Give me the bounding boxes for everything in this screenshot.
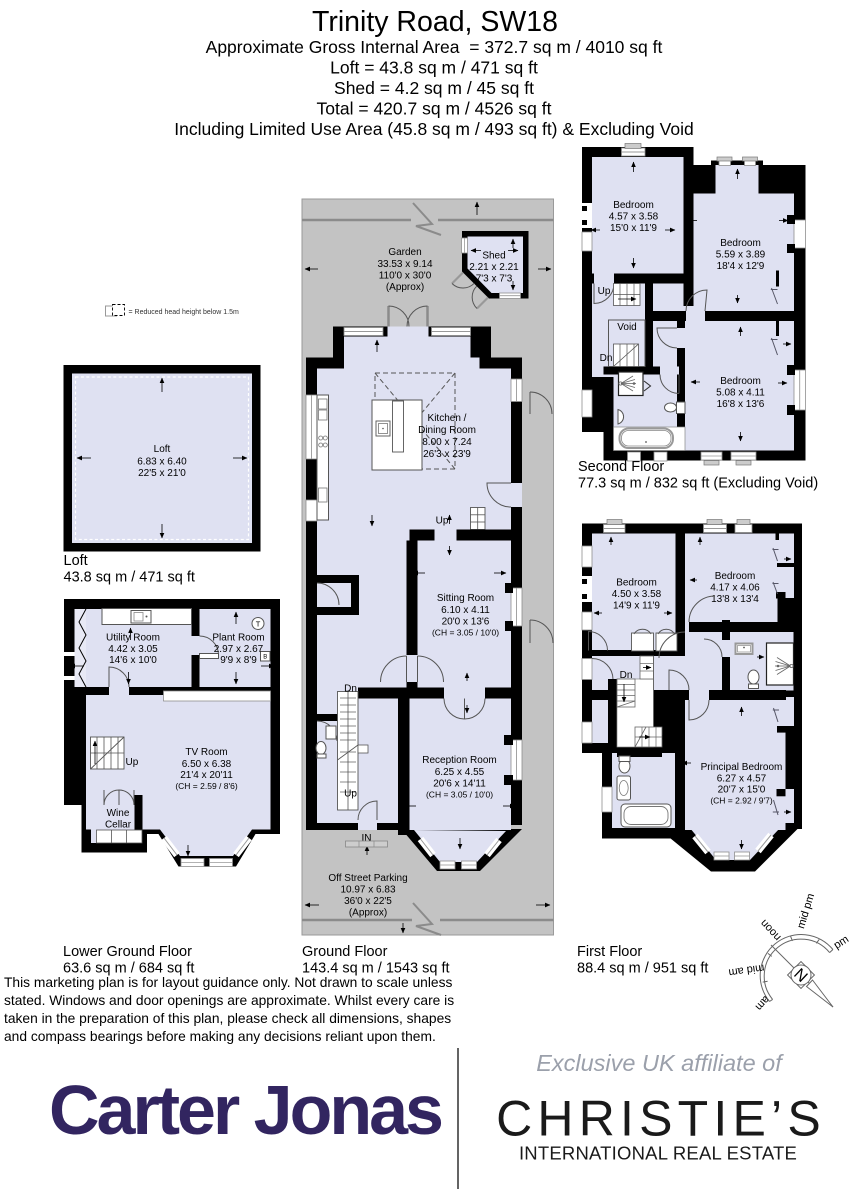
svg-text:Including Limited Use Area (45: Including Limited Use Area (45.8 sq m / … [174, 119, 693, 139]
svg-text:77.3 sq m / 832 sq ft (Excludi: 77.3 sq m / 832 sq ft (Excluding Void) [578, 476, 818, 492]
svg-text:(CH = 3.05 / 10'0): (CH = 3.05 / 10'0) [426, 790, 493, 800]
svg-text:Bedroom: Bedroom [715, 571, 756, 582]
svg-text:20'7 x 15'0: 20'7 x 15'0 [718, 785, 766, 796]
svg-text:Principal Bedroom: Principal Bedroom [701, 762, 783, 773]
svg-text:Shed = 4.2 sq m / 45 sq ft: Shed = 4.2 sq m / 45 sq ft [334, 78, 534, 98]
svg-text:5.59 x 3.89: 5.59 x 3.89 [716, 250, 766, 261]
svg-text:T: T [256, 620, 261, 629]
svg-text:20'0 x 13'6: 20'0 x 13'6 [442, 617, 490, 628]
svg-text:13'8 x 13'4: 13'8 x 13'4 [711, 594, 759, 605]
svg-text:14'9 x 11'9: 14'9 x 11'9 [613, 601, 660, 612]
svg-text:5.08 x 4.11: 5.08 x 4.11 [716, 388, 765, 399]
svg-text:33.53 x 9.14: 33.53 x 9.14 [377, 259, 432, 270]
svg-text:2.21 x 2.21: 2.21 x 2.21 [469, 262, 519, 273]
svg-text:6.10 x 4.11: 6.10 x 4.11 [441, 605, 490, 616]
svg-text:143.4 sq m / 1543 sq ft: 143.4 sq m / 1543 sq ft [302, 960, 450, 976]
svg-text:4.42 x 3.05: 4.42 x 3.05 [108, 644, 158, 655]
svg-text:Loft: Loft [154, 444, 171, 455]
svg-text:26'3 x 23'9: 26'3 x 23'9 [423, 449, 471, 460]
svg-text:63.6 sq m / 684 sq ft: 63.6 sq m / 684 sq ft [63, 960, 194, 976]
svg-text:Bedroom: Bedroom [616, 578, 657, 589]
svg-text:Plant Room: Plant Room [212, 633, 264, 644]
svg-text:6.83 x 6.40: 6.83 x 6.40 [137, 457, 187, 468]
svg-text:B: B [263, 655, 267, 661]
svg-text:20'6 x 14'11: 20'6 x 14'11 [433, 779, 486, 790]
svg-text:4.57 x 3.58: 4.57 x 3.58 [609, 212, 659, 223]
svg-text:Sitting Room: Sitting Room [437, 593, 494, 604]
svg-text:(Approx): (Approx) [386, 282, 424, 293]
svg-text:(Approx): (Approx) [349, 908, 387, 919]
svg-text:Trinity Road, SW18: Trinity Road, SW18 [312, 6, 558, 38]
svg-text:6.50 x 6.38: 6.50 x 6.38 [182, 759, 232, 770]
svg-text:Exclusive UK affiliate of: Exclusive UK affiliate of [536, 1050, 784, 1076]
svg-text:= Reduced head height below 1.: = Reduced head height below 1.5m [129, 309, 239, 316]
svg-text:Total = 420.7 sq m / 4526 sq f: Total = 420.7 sq m / 4526 sq ft [317, 99, 552, 119]
svg-text:18'4 x 12'9: 18'4 x 12'9 [717, 261, 765, 272]
svg-text:Dn: Dn [600, 353, 613, 364]
svg-text:Void: Void [617, 322, 636, 333]
svg-text:Ground Floor: Ground Floor [302, 944, 388, 960]
svg-text:stated. Windows and door openi: stated. Windows and door openings are ap… [4, 993, 454, 1008]
svg-text:6.25 x 4.55: 6.25 x 4.55 [435, 767, 485, 778]
svg-text:Dn: Dn [344, 684, 357, 695]
svg-text:Shed: Shed [482, 251, 505, 262]
svg-text:Up: Up [662, 734, 675, 745]
svg-text:110'0 x 30'0: 110'0 x 30'0 [379, 271, 432, 282]
svg-text:This marketing plan is for lay: This marketing plan is for layout guidan… [4, 975, 452, 990]
svg-text:Bedroom: Bedroom [720, 376, 761, 387]
svg-text:First Floor: First Floor [577, 944, 642, 960]
svg-text:7'3 x 7'3: 7'3 x 7'3 [476, 273, 513, 284]
svg-text:2.97 x 2.67: 2.97 x 2.67 [214, 644, 264, 655]
svg-text:9'9 x 8'9: 9'9 x 8'9 [220, 655, 257, 666]
svg-text:Bedroom: Bedroom [720, 238, 761, 249]
svg-text:Utility Room: Utility Room [106, 633, 160, 644]
svg-text:Cellar: Cellar [105, 820, 132, 831]
svg-text:14'6 x 10'0: 14'6 x 10'0 [109, 655, 157, 666]
svg-text:TV Room: TV Room [185, 747, 227, 758]
svg-text:CHRISTIE’S: CHRISTIE’S [496, 1091, 826, 1147]
svg-text:Off Street Parking: Off Street Parking [328, 873, 407, 884]
svg-text:Bedroom: Bedroom [613, 200, 654, 211]
svg-text:Loft: Loft [64, 553, 88, 569]
svg-text:taken in the preparation of th: taken in the preparation of this plan, p… [4, 1011, 451, 1026]
svg-text:8.00 x 7.24: 8.00 x 7.24 [422, 437, 472, 448]
svg-text:INTERNATIONAL REAL ESTATE: INTERNATIONAL REAL ESTATE [519, 1143, 797, 1164]
svg-text:Up: Up [344, 789, 357, 800]
svg-text:16'8 x 13'6: 16'8 x 13'6 [717, 399, 765, 410]
svg-text:Lower Ground Floor: Lower Ground Floor [63, 944, 192, 960]
svg-text:Loft = 43.8 sq m / 471 sq ft: Loft = 43.8 sq m / 471 sq ft [330, 58, 538, 78]
svg-text:4.17 x 4.06: 4.17 x 4.06 [710, 583, 760, 594]
svg-text:10.97 x 6.83: 10.97 x 6.83 [340, 885, 395, 896]
svg-text:88.4 sq m / 951 sq ft: 88.4 sq m / 951 sq ft [577, 960, 708, 976]
svg-text:Up: Up [436, 516, 449, 527]
svg-text:Wine: Wine [107, 808, 130, 819]
svg-text:Approximate Gross Internal Are: Approximate Gross Internal Area = 372.7 … [206, 37, 663, 57]
svg-text:22'5 x 21'0: 22'5 x 21'0 [138, 468, 186, 479]
svg-text:(CH = 2.59 / 8'6): (CH = 2.59 / 8'6) [175, 781, 238, 791]
svg-text:(CH = 2.92 / 9'7): (CH = 2.92 / 9'7) [710, 796, 773, 806]
svg-text:Dining Room: Dining Room [418, 425, 476, 436]
svg-text:Carter Jonas: Carter Jonas [49, 1071, 442, 1149]
svg-text:Up: Up [598, 286, 611, 297]
svg-text:Kitchen /: Kitchen / [428, 413, 467, 424]
svg-text:Second Floor: Second Floor [578, 459, 664, 475]
svg-text:Reception Room: Reception Room [422, 755, 496, 766]
svg-text:Garden: Garden [388, 247, 421, 258]
svg-text:(CH = 3.05 / 10'0): (CH = 3.05 / 10'0) [432, 628, 499, 638]
svg-text:36'0 x 22'5: 36'0 x 22'5 [344, 896, 392, 907]
svg-text:21'4 x 20'11: 21'4 x 20'11 [180, 770, 233, 781]
svg-text:15'0 x 11'9: 15'0 x 11'9 [610, 223, 657, 234]
svg-text:Up: Up [126, 757, 139, 768]
svg-text:and compass bearings before ma: and compass bearings before making any d… [4, 1029, 436, 1044]
svg-text:4.50 x 3.58: 4.50 x 3.58 [612, 589, 662, 600]
svg-text:43.8 sq m / 471 sq ft: 43.8 sq m / 471 sq ft [64, 570, 195, 586]
svg-text:6.27 x 4.57: 6.27 x 4.57 [717, 774, 767, 785]
